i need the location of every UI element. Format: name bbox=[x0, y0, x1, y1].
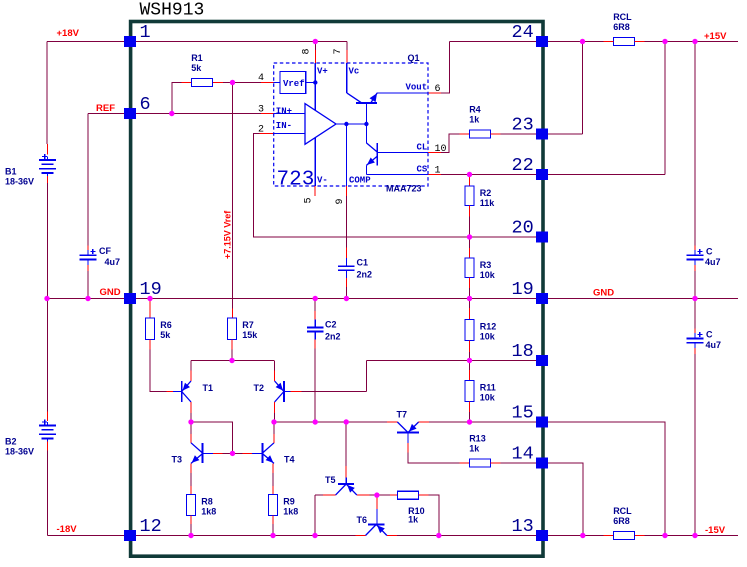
svg-text:15k: 15k bbox=[242, 330, 258, 340]
svg-text:GND: GND bbox=[593, 288, 614, 299]
svg-text:6: 6 bbox=[435, 84, 441, 95]
svg-text:10k: 10k bbox=[480, 332, 496, 342]
svg-text:CS: CS bbox=[417, 165, 428, 175]
svg-text:1k: 1k bbox=[408, 515, 419, 525]
svg-text:R6: R6 bbox=[160, 320, 172, 330]
svg-text:5k: 5k bbox=[160, 330, 171, 340]
svg-text:9: 9 bbox=[335, 198, 346, 204]
svg-text:-15V: -15V bbox=[705, 525, 726, 536]
svg-text:REF: REF bbox=[96, 103, 115, 114]
svg-text:1: 1 bbox=[435, 166, 441, 177]
svg-text:2n2: 2n2 bbox=[357, 270, 373, 280]
svg-text:3: 3 bbox=[258, 105, 264, 116]
svg-text:24: 24 bbox=[512, 22, 534, 43]
svg-text:5k: 5k bbox=[191, 63, 202, 73]
svg-text:C: C bbox=[706, 247, 713, 257]
svg-text:6R8: 6R8 bbox=[613, 516, 630, 526]
svg-text:4: 4 bbox=[258, 73, 264, 84]
svg-text:R2: R2 bbox=[480, 188, 492, 198]
svg-text:R9: R9 bbox=[283, 497, 295, 507]
svg-text:R8: R8 bbox=[201, 497, 213, 507]
svg-text:7: 7 bbox=[333, 48, 344, 54]
svg-text:CF: CF bbox=[99, 246, 111, 256]
svg-text:19: 19 bbox=[512, 279, 534, 300]
svg-text:22: 22 bbox=[512, 155, 534, 176]
svg-text:4u7: 4u7 bbox=[705, 257, 721, 267]
svg-text:IN+: IN+ bbox=[276, 106, 292, 116]
svg-text:18-36V: 18-36V bbox=[5, 447, 34, 457]
svg-text:6R8: 6R8 bbox=[613, 22, 630, 32]
svg-text:R12: R12 bbox=[480, 322, 497, 332]
svg-text:Vc: Vc bbox=[349, 67, 360, 77]
svg-text:B2: B2 bbox=[5, 437, 17, 447]
svg-text:4u7: 4u7 bbox=[706, 340, 722, 350]
svg-text:5: 5 bbox=[303, 197, 314, 203]
svg-text:C1: C1 bbox=[357, 258, 369, 268]
svg-text:723: 723 bbox=[277, 169, 315, 192]
svg-text:20: 20 bbox=[512, 218, 534, 239]
svg-text:+15V: +15V bbox=[704, 31, 727, 42]
svg-text:2: 2 bbox=[258, 125, 264, 136]
svg-text:15: 15 bbox=[512, 403, 534, 424]
svg-text:Q1: Q1 bbox=[408, 53, 420, 63]
svg-text:23: 23 bbox=[512, 115, 534, 136]
svg-text:T4: T4 bbox=[284, 455, 295, 465]
svg-text:18-36V: 18-36V bbox=[5, 177, 34, 187]
svg-text:R11: R11 bbox=[480, 383, 496, 393]
svg-text:B1: B1 bbox=[5, 167, 17, 177]
svg-text:R4: R4 bbox=[469, 105, 481, 115]
svg-text:14: 14 bbox=[512, 444, 534, 465]
svg-text:T6: T6 bbox=[357, 515, 368, 525]
svg-text:1k: 1k bbox=[469, 444, 480, 454]
svg-text:C2: C2 bbox=[325, 320, 337, 330]
svg-text:WSH913: WSH913 bbox=[140, 1, 205, 21]
svg-text:MAA723: MAA723 bbox=[386, 184, 422, 194]
svg-text:18: 18 bbox=[512, 341, 534, 362]
svg-text:V-: V- bbox=[317, 176, 328, 186]
svg-text:V+: V+ bbox=[317, 67, 328, 77]
svg-text:RCL: RCL bbox=[613, 12, 632, 22]
svg-text:R3: R3 bbox=[480, 260, 492, 270]
svg-text:R13: R13 bbox=[469, 434, 486, 444]
svg-text:R1: R1 bbox=[191, 53, 203, 63]
svg-text:IN-: IN- bbox=[276, 121, 292, 131]
svg-text:RCL: RCL bbox=[613, 506, 632, 516]
svg-text:1k8: 1k8 bbox=[201, 507, 216, 517]
svg-text:10: 10 bbox=[435, 144, 447, 155]
svg-text:Vref: Vref bbox=[283, 79, 305, 89]
svg-text:T1: T1 bbox=[203, 383, 214, 393]
svg-text:13: 13 bbox=[512, 516, 534, 537]
svg-text:10k: 10k bbox=[480, 270, 496, 280]
svg-text:8: 8 bbox=[302, 48, 313, 54]
svg-text:T3: T3 bbox=[172, 455, 183, 465]
svg-text:Vout: Vout bbox=[406, 83, 428, 93]
svg-text:1k8: 1k8 bbox=[283, 507, 298, 517]
svg-text:12: 12 bbox=[140, 516, 162, 537]
svg-text:2n2: 2n2 bbox=[325, 332, 341, 342]
svg-text:C: C bbox=[706, 330, 713, 340]
svg-text:1: 1 bbox=[140, 22, 151, 43]
svg-text:GND: GND bbox=[100, 287, 121, 298]
svg-text:COMP: COMP bbox=[349, 176, 371, 186]
svg-text:+18V: +18V bbox=[57, 28, 80, 39]
svg-text:-18V: -18V bbox=[57, 524, 78, 535]
svg-text:T2: T2 bbox=[254, 383, 265, 393]
svg-text:10k: 10k bbox=[480, 393, 496, 403]
svg-text:T5: T5 bbox=[325, 475, 336, 485]
svg-text:4u7: 4u7 bbox=[105, 257, 121, 267]
svg-text:R7: R7 bbox=[242, 320, 254, 330]
svg-text:6: 6 bbox=[140, 94, 151, 115]
svg-text:11k: 11k bbox=[480, 198, 496, 208]
svg-text:CL: CL bbox=[417, 143, 428, 153]
svg-text:1k: 1k bbox=[469, 115, 480, 125]
svg-text:T7: T7 bbox=[397, 410, 408, 420]
svg-text:+7.15V Vref: +7.15V Vref bbox=[223, 210, 233, 259]
